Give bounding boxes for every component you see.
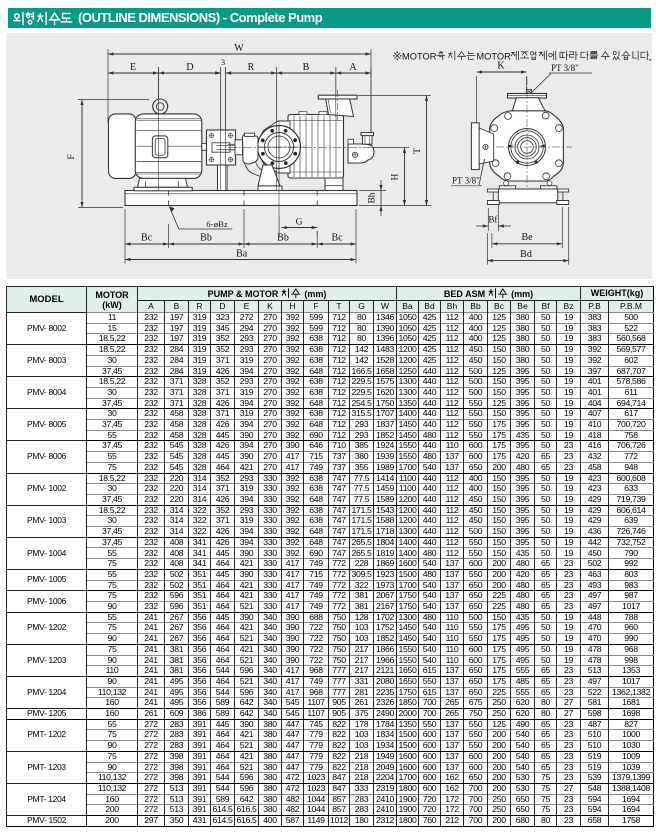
svg-text:B: B bbox=[303, 62, 310, 73]
svg-text:Bf: Bf bbox=[488, 215, 497, 225]
svg-text:G: G bbox=[296, 218, 303, 228]
svg-text:Be: Be bbox=[521, 232, 533, 243]
svg-text:K: K bbox=[497, 61, 505, 72]
svg-text:Bb: Bb bbox=[277, 233, 289, 244]
svg-text:H: H bbox=[391, 173, 401, 180]
svg-text:PT 3/8": PT 3/8" bbox=[551, 63, 579, 73]
svg-text:A: A bbox=[349, 62, 357, 73]
svg-text:PT 3/8": PT 3/8" bbox=[452, 176, 480, 186]
svg-text:E: E bbox=[130, 62, 136, 73]
svg-text:Ba: Ba bbox=[236, 249, 248, 260]
svg-text:Bc: Bc bbox=[331, 233, 343, 244]
svg-text:F: F bbox=[67, 154, 77, 159]
svg-text:T: T bbox=[413, 148, 423, 154]
svg-text:Bd: Bd bbox=[520, 249, 532, 260]
svg-text:R: R bbox=[248, 62, 255, 73]
svg-text:D: D bbox=[186, 62, 193, 73]
svg-text:6-øBz: 6-øBz bbox=[206, 219, 228, 229]
svg-text:Bb: Bb bbox=[200, 233, 212, 244]
svg-text:Bh: Bh bbox=[368, 192, 378, 203]
svg-text:Bc: Bc bbox=[141, 233, 153, 244]
svg-text:3: 3 bbox=[221, 57, 225, 67]
svg-text:W: W bbox=[234, 43, 244, 54]
